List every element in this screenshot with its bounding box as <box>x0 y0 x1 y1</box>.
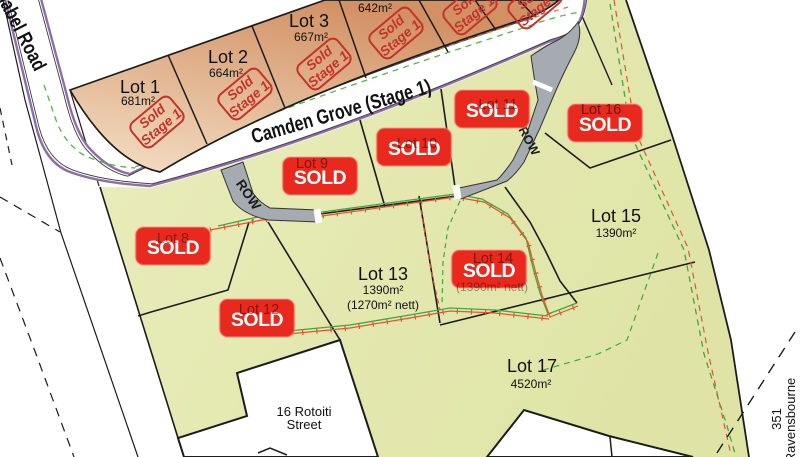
svg-text:4520m²: 4520m² <box>511 377 552 391</box>
svg-text:Lot 15: Lot 15 <box>591 206 641 226</box>
svg-text:Lot 14: Lot 14 <box>473 251 513 267</box>
svg-text:Ravensbourne: Ravensbourne <box>783 378 798 457</box>
svg-text:Lot 10: Lot 10 <box>397 136 437 152</box>
svg-text:Lot 3: Lot 3 <box>289 11 329 31</box>
svg-text:1390m²: 1390m² <box>596 226 637 240</box>
svg-text:1390m²: 1390m² <box>363 283 404 297</box>
svg-text:351: 351 <box>769 408 784 430</box>
svg-text:(1270m² nett): (1270m² nett) <box>347 298 419 312</box>
svg-text:681m²: 681m² <box>121 94 155 108</box>
svg-text:Lot 8: Lot 8 <box>157 231 189 247</box>
svg-text:664m²: 664m² <box>209 66 243 80</box>
svg-text:Lot 13: Lot 13 <box>358 264 408 284</box>
svg-text:642m²: 642m² <box>358 1 392 15</box>
svg-text:Street: Street <box>287 417 322 432</box>
svg-text:Lot 9: Lot 9 <box>296 156 328 172</box>
svg-text:Lot 12: Lot 12 <box>239 302 279 318</box>
svg-text:(1390m² nett): (1390m² nett) <box>456 280 528 294</box>
svg-text:667m²: 667m² <box>294 30 328 44</box>
svg-text:Lot 17: Lot 17 <box>507 356 557 376</box>
svg-text:Lot 11: Lot 11 <box>478 97 517 113</box>
svg-text:Lot 2: Lot 2 <box>208 47 248 67</box>
svg-text:Lot 16: Lot 16 <box>581 102 621 118</box>
